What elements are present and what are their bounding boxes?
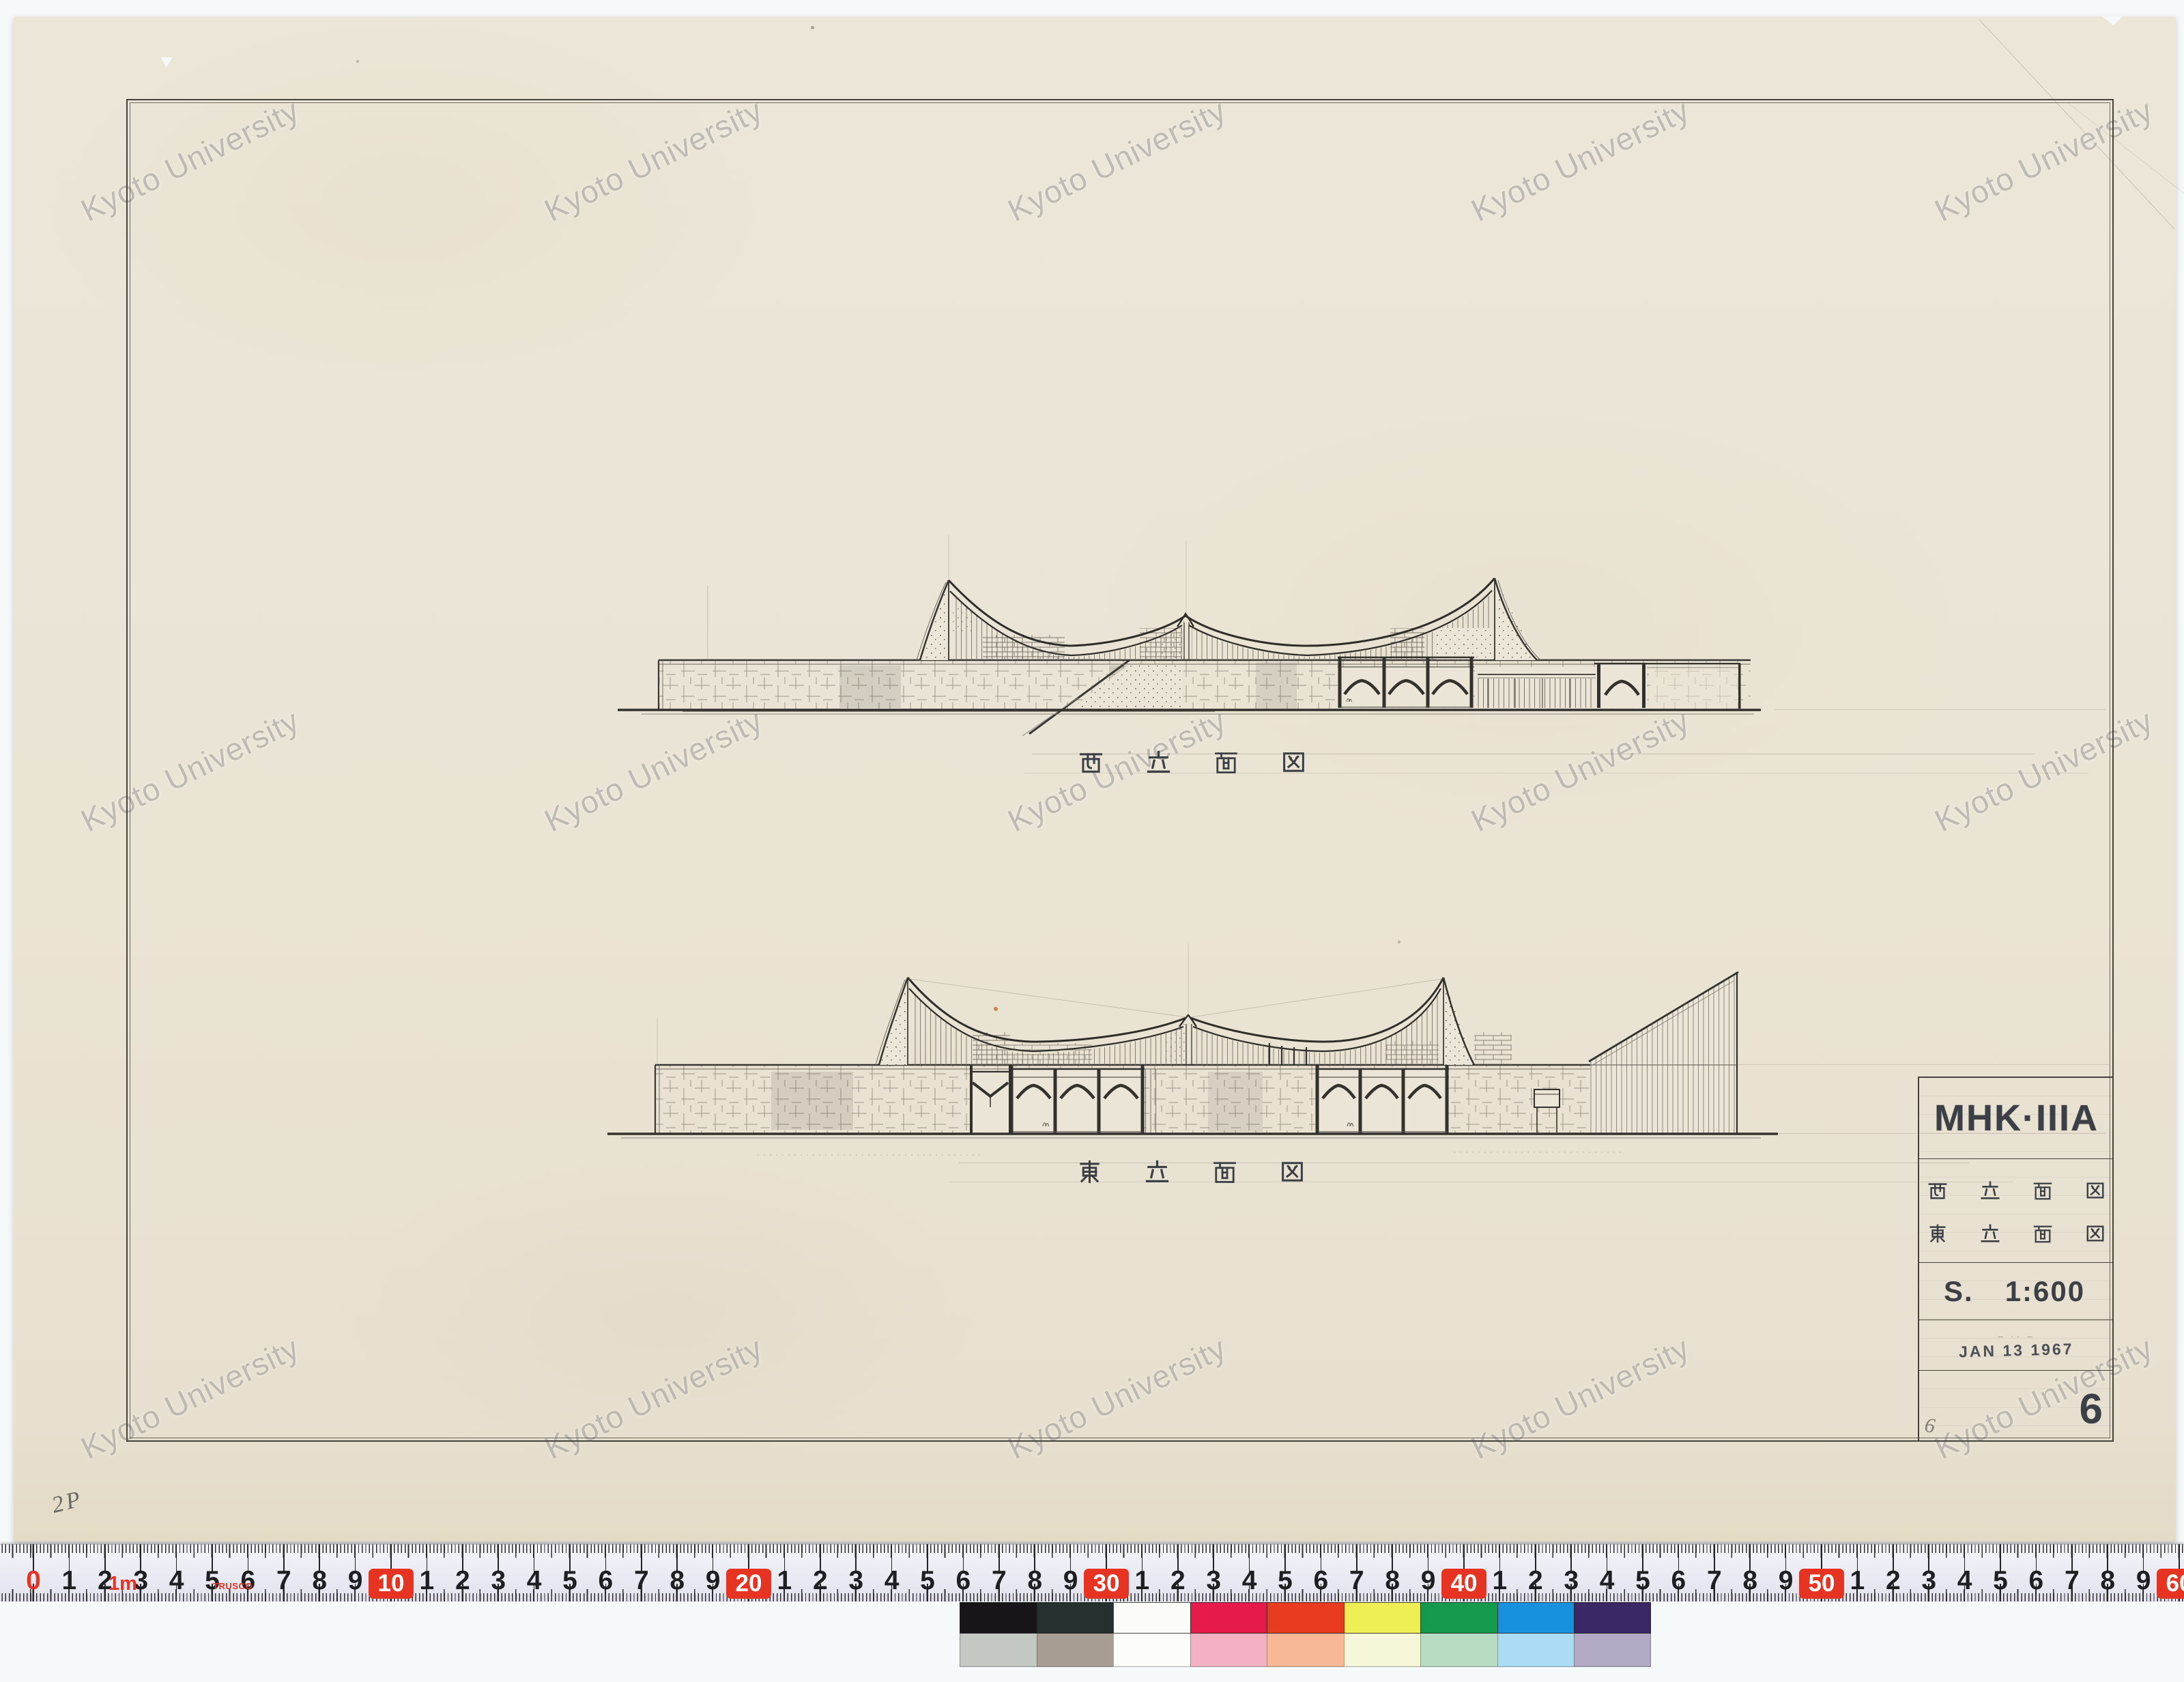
color-patch bbox=[1113, 1634, 1190, 1667]
ruler-number: 5 bbox=[1278, 1566, 1293, 1596]
kanji-立-glyph bbox=[1980, 1223, 2000, 1244]
ruler-number: 9 bbox=[1063, 1566, 1078, 1596]
ruler-number: 5 bbox=[562, 1566, 577, 1596]
color-patch bbox=[1190, 1602, 1267, 1634]
west-elevation-caption bbox=[1078, 750, 1306, 775]
ruler-number: 7 bbox=[276, 1566, 291, 1596]
ruler-brand-logo: TRUSCO bbox=[213, 1581, 253, 1591]
color-patch bbox=[1113, 1602, 1190, 1634]
kanji-面-glyph bbox=[1212, 1159, 1237, 1184]
ruler-number: 1 bbox=[1850, 1566, 1865, 1596]
ruler-number: 8 bbox=[1742, 1566, 1757, 1596]
title-block-date: – ·· – JAN 13 1967 bbox=[1919, 1320, 2114, 1370]
color-patch bbox=[1344, 1602, 1421, 1634]
kanji-面-glyph bbox=[2032, 1223, 2053, 1244]
ruler-number: 7 bbox=[992, 1566, 1007, 1596]
ruler-number: 6 bbox=[2029, 1566, 2044, 1596]
ruler-decade-label: 30 bbox=[1084, 1569, 1129, 1599]
ruler-number: 9 bbox=[348, 1566, 363, 1596]
ruler-number: 4 bbox=[527, 1566, 542, 1596]
title-block: MHK·IIIA S. 1:600 – ·· – JAN 13 1967 6 bbox=[1918, 1077, 2114, 1442]
sheet-title-west bbox=[1927, 1180, 2106, 1201]
ruler-number: 9 bbox=[1421, 1566, 1436, 1596]
kanji-立-glyph bbox=[1146, 750, 1171, 775]
ruler-number: 9 bbox=[2136, 1566, 2151, 1596]
east-elevation-drawing bbox=[601, 928, 1802, 1160]
ruler-number: 8 bbox=[312, 1566, 327, 1596]
ruler-number: 6 bbox=[956, 1566, 971, 1596]
ruler-number: 9 bbox=[706, 1566, 721, 1596]
ruler-number: 1 bbox=[420, 1566, 435, 1596]
kanji-面-glyph bbox=[2032, 1180, 2053, 1201]
ruler-number: 3 bbox=[1564, 1566, 1579, 1596]
ruler-number: 5 bbox=[1635, 1566, 1650, 1596]
kanji-図-glyph bbox=[1280, 1159, 1305, 1184]
ruler-number: 1 bbox=[1135, 1566, 1150, 1596]
kanji-東-glyph bbox=[1077, 1159, 1102, 1184]
ruler-number: 2 bbox=[813, 1566, 828, 1596]
ruler-number: 7 bbox=[634, 1566, 649, 1596]
ruler-number: 7 bbox=[1707, 1566, 1722, 1596]
ruler-number: 8 bbox=[2100, 1566, 2115, 1596]
ruler-number: 9 bbox=[1779, 1566, 1794, 1596]
east-elevation-caption bbox=[1077, 1159, 1305, 1184]
kanji-東-glyph bbox=[1927, 1223, 1948, 1244]
scanned-sheet: Kyoto UniversityKyoto UniversityKyoto Un… bbox=[0, 0, 2184, 1682]
color-patch bbox=[1344, 1634, 1421, 1667]
color-patch bbox=[1420, 1602, 1497, 1634]
date-stamp: JAN 13 1967 bbox=[1959, 1339, 2074, 1360]
color-calibration-bar bbox=[960, 1602, 1651, 1667]
ruler-number: 1 bbox=[1493, 1566, 1508, 1596]
ruler-number: 5 bbox=[1993, 1566, 2008, 1596]
kanji-立-glyph bbox=[1145, 1159, 1170, 1184]
ruler-decade-label: 20 bbox=[726, 1569, 771, 1599]
ruler-number: 1 bbox=[777, 1566, 792, 1596]
ruler-number: 1 bbox=[62, 1566, 77, 1596]
pencil-dashes: – ·· – bbox=[1998, 1331, 2035, 1341]
scale-prefix: S. bbox=[1944, 1275, 1974, 1308]
color-patch bbox=[1497, 1602, 1575, 1634]
ruler-number: 5 bbox=[920, 1566, 935, 1596]
ruler-number: 6 bbox=[1314, 1566, 1329, 1596]
ruler-number: 2 bbox=[1886, 1566, 1901, 1596]
kanji-西-glyph bbox=[1927, 1180, 1948, 1201]
ruler-number: 7 bbox=[2065, 1566, 2080, 1596]
ruler-decade-label: 60 bbox=[2157, 1569, 2184, 1599]
west-elevation-drawing bbox=[601, 526, 1802, 751]
ruler-number: 4 bbox=[169, 1566, 184, 1596]
color-patch bbox=[1574, 1602, 1651, 1634]
title-block-sheet-number: 6 bbox=[1919, 1370, 2114, 1439]
scale-value: 1:600 bbox=[2005, 1275, 2085, 1308]
paper-speck bbox=[811, 26, 814, 29]
ruler-decade-label: 10 bbox=[369, 1569, 414, 1599]
color-patch bbox=[960, 1634, 1037, 1667]
ruler-decade-label: 50 bbox=[1799, 1569, 1844, 1599]
ruler-number: 2 bbox=[455, 1566, 470, 1596]
kanji-図-glyph bbox=[2085, 1180, 2106, 1201]
ruler-number: 6 bbox=[599, 1566, 614, 1596]
color-patch bbox=[1497, 1634, 1575, 1667]
ruler-meter-label: 1m bbox=[109, 1573, 137, 1595]
wall-extension-line bbox=[1737, 1064, 2109, 1065]
ruler-number: 0 bbox=[26, 1566, 41, 1596]
title-block-scale: S. 1:600 bbox=[1919, 1262, 2114, 1320]
title-block-project-code: MHK·IIIA bbox=[1919, 1077, 2114, 1158]
measuring-ruler: 0123456789101234567892012345678930123456… bbox=[0, 1544, 2184, 1601]
kanji-図-glyph bbox=[2085, 1223, 2106, 1244]
kanji-図-glyph bbox=[1281, 750, 1306, 775]
color-patch bbox=[1037, 1634, 1114, 1667]
ruler-number: 3 bbox=[491, 1566, 506, 1596]
ruler-number: 3 bbox=[1206, 1566, 1221, 1596]
color-patch bbox=[1267, 1602, 1344, 1634]
paper-speck bbox=[356, 60, 359, 63]
ruler-number: 3 bbox=[1921, 1566, 1936, 1596]
ruler-number: 2 bbox=[1528, 1566, 1543, 1596]
color-patch bbox=[1267, 1634, 1344, 1667]
ground-extension-line bbox=[1774, 709, 2106, 710]
ruler-number: 2 bbox=[1170, 1566, 1186, 1596]
ruler-number: 8 bbox=[1385, 1566, 1400, 1596]
kanji-面-glyph bbox=[1213, 750, 1239, 775]
kanji-立-glyph bbox=[1980, 1180, 2000, 1201]
ruler-number: 3 bbox=[848, 1566, 863, 1596]
ruler-number: 4 bbox=[1957, 1566, 1972, 1596]
title-block-sheet-titles bbox=[1919, 1158, 2114, 1262]
ruler-decade-label: 40 bbox=[1441, 1569, 1486, 1599]
sheet-title-east bbox=[1927, 1223, 2106, 1244]
ruler-number: 4 bbox=[1242, 1566, 1257, 1596]
ruler-number: 8 bbox=[670, 1566, 685, 1596]
color-patch bbox=[1420, 1634, 1497, 1667]
color-patch bbox=[1574, 1634, 1651, 1667]
ruler-number: 7 bbox=[1349, 1566, 1364, 1596]
color-patch bbox=[1037, 1602, 1114, 1634]
ruler-number: 4 bbox=[1600, 1566, 1615, 1596]
ruler-number: 4 bbox=[885, 1566, 900, 1596]
kanji-西-glyph bbox=[1078, 750, 1104, 775]
color-patch bbox=[960, 1602, 1037, 1634]
ruler-number: 6 bbox=[1671, 1566, 1686, 1596]
color-patch bbox=[1190, 1634, 1267, 1667]
ruler-number: 8 bbox=[1027, 1566, 1042, 1596]
